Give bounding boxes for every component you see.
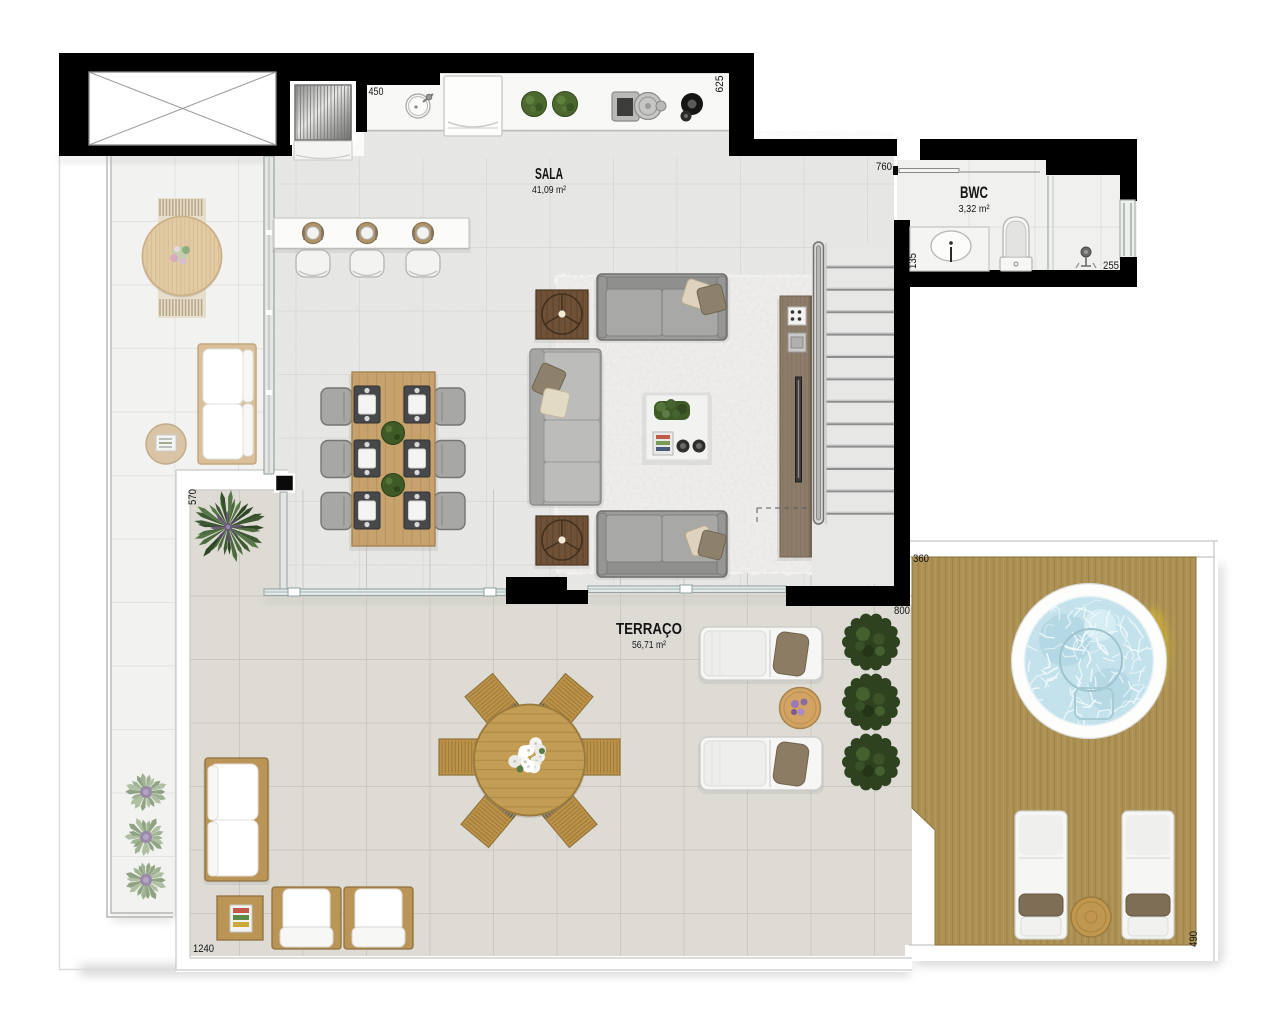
svg-text:625: 625: [714, 76, 726, 93]
svg-text:760: 760: [876, 161, 892, 173]
svg-text:3,32 m²: 3,32 m²: [959, 203, 990, 215]
svg-text:360: 360: [913, 553, 929, 565]
svg-text:570: 570: [187, 489, 199, 505]
svg-text:56,71 m²: 56,71 m²: [632, 639, 666, 651]
svg-text:490: 490: [1188, 931, 1200, 947]
svg-text:BWC: BWC: [960, 184, 988, 202]
svg-text:135: 135: [907, 253, 919, 269]
svg-text:800: 800: [894, 605, 910, 617]
svg-text:450: 450: [369, 86, 384, 98]
svg-text:41,09 m²: 41,09 m²: [532, 184, 566, 196]
svg-text:255: 255: [1103, 260, 1119, 272]
svg-text:SALA: SALA: [535, 166, 563, 183]
svg-text:TERRAÇO: TERRAÇO: [616, 621, 682, 638]
svg-text:1240: 1240: [193, 943, 214, 955]
